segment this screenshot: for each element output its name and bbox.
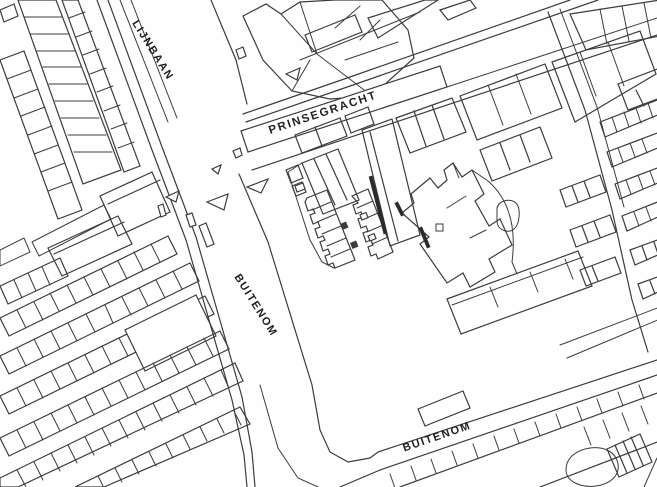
city-map[interactable]: LIJNBAAN PRINSEGRACHT BUITENOM BUITENOM xyxy=(0,0,657,487)
map-background xyxy=(0,0,657,487)
map-canvas: LIJNBAAN PRINSEGRACHT BUITENOM BUITENOM xyxy=(0,0,657,487)
